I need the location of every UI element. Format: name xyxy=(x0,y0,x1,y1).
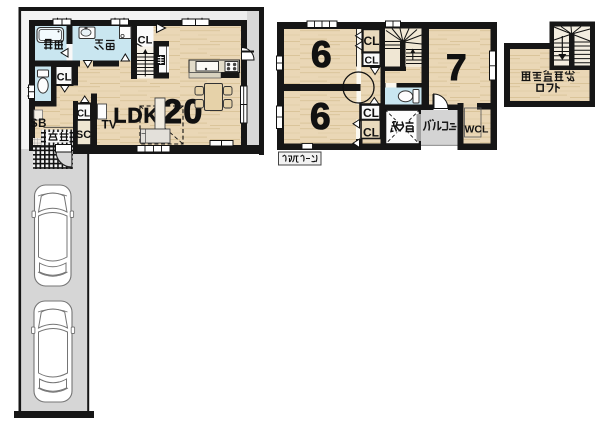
svg-text:SB: SB xyxy=(30,118,47,130)
svg-text:CL: CL xyxy=(138,35,153,47)
svg-text:CL: CL xyxy=(77,109,90,120)
svg-text:CL: CL xyxy=(363,106,379,120)
svg-text:CL: CL xyxy=(365,55,380,67)
svg-text:WCL: WCL xyxy=(465,124,489,136)
svg-text:7: 7 xyxy=(446,47,467,88)
svg-text:LDK: LDK xyxy=(114,105,160,128)
svg-text:SC: SC xyxy=(76,129,91,141)
svg-text:6: 6 xyxy=(311,34,332,75)
svg-text:CL: CL xyxy=(363,126,379,140)
svg-text:6: 6 xyxy=(310,96,331,137)
svg-text:CL: CL xyxy=(364,34,380,48)
svg-text:CL: CL xyxy=(57,72,72,84)
